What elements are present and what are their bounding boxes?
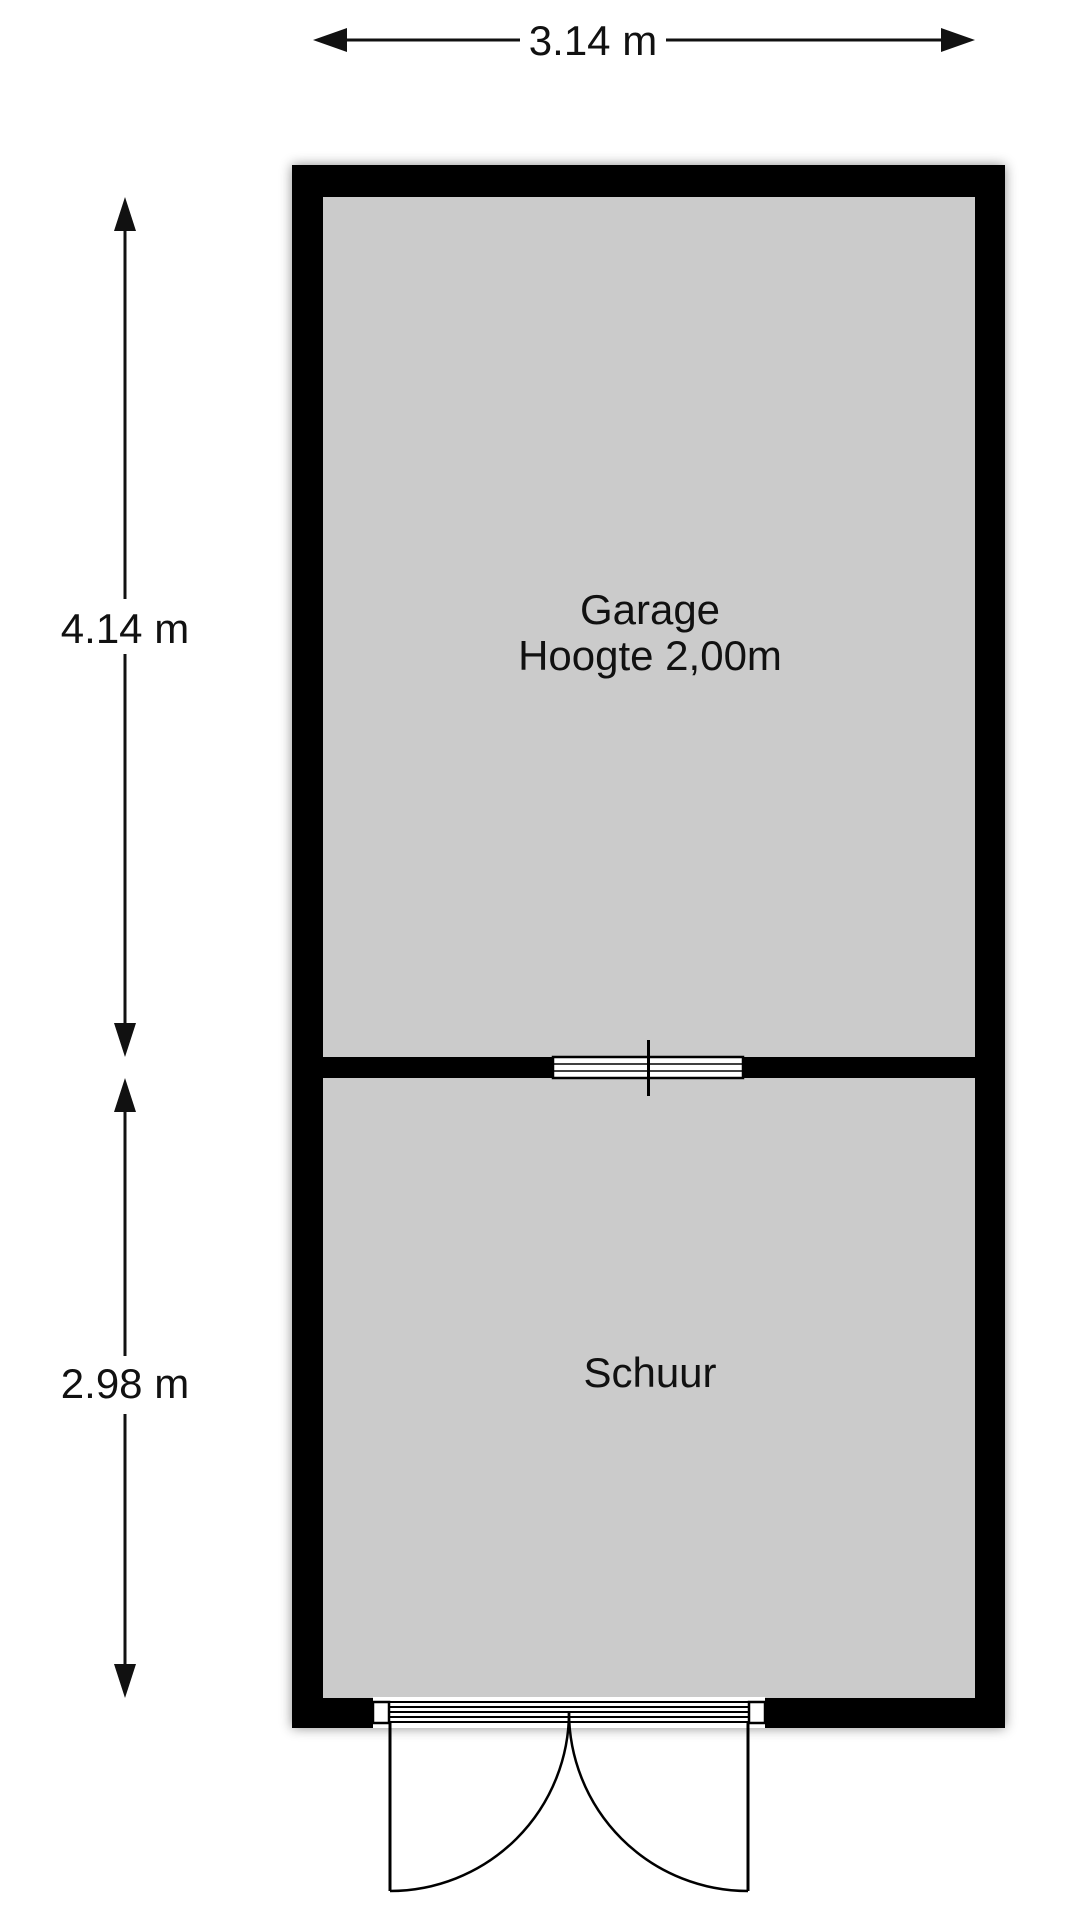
dimension-garage-depth-label: 4.14 m: [61, 605, 189, 652]
dimension-garage-depth: 4.14 m: [61, 197, 189, 1057]
schuur-room-label: Schuur: [583, 1349, 716, 1396]
arrowhead-down: [114, 1664, 136, 1698]
floorplan-page: 3.14 m 4.14 m 2.98 m Garage Hoogte 2,00m…: [0, 0, 1080, 1920]
door-jamb-right: [749, 1702, 765, 1723]
arrowhead-up: [114, 1078, 136, 1112]
dimension-schuur-depth: 2.98 m: [61, 1078, 189, 1698]
dimension-schuur-depth-label: 2.98 m: [61, 1360, 189, 1407]
door-swing-arc-left: [390, 1712, 569, 1891]
arrowhead-down: [114, 1023, 136, 1057]
garage-height-note: Hoogte 2,00m: [518, 632, 782, 679]
door-jamb-left: [373, 1702, 389, 1723]
dimension-width-label: 3.14 m: [529, 17, 657, 64]
garage-room-label: Garage: [580, 586, 720, 633]
floorplan-drawing: 3.14 m 4.14 m 2.98 m Garage Hoogte 2,00m…: [0, 0, 1080, 1920]
entrance-door: [373, 1697, 765, 1891]
arrowhead-left: [313, 28, 347, 52]
dimension-width: 3.14 m: [313, 17, 975, 64]
arrowhead-right: [941, 28, 975, 52]
building: [292, 165, 1005, 1728]
arrowhead-up: [114, 197, 136, 231]
door-swing-arc-right: [569, 1712, 748, 1891]
